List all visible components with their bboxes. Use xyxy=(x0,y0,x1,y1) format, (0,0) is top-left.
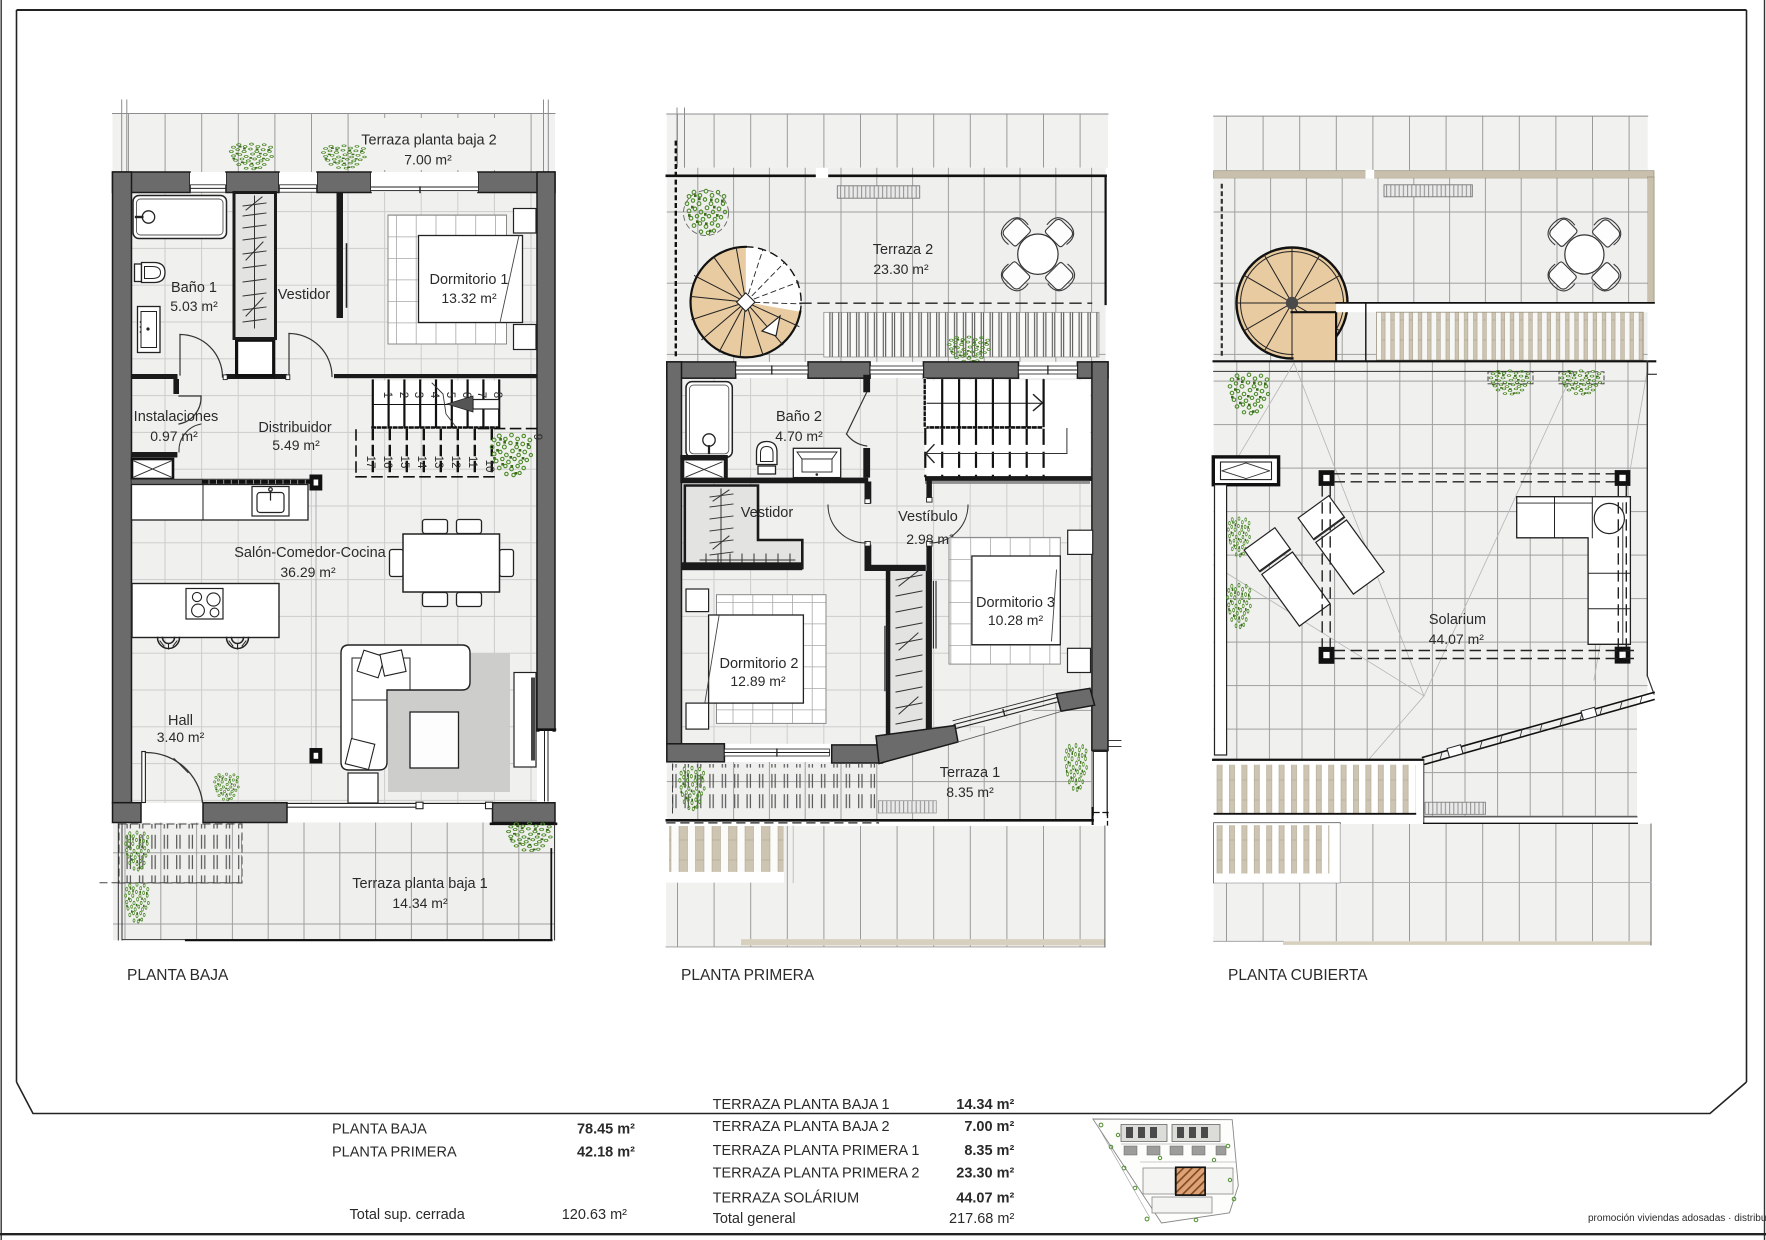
svg-text:1: 1 xyxy=(381,392,393,398)
svg-text:Instalaciones: Instalaciones xyxy=(134,409,219,425)
svg-text:Vestíbulo: Vestíbulo xyxy=(898,509,958,525)
svg-text:120.63 m²: 120.63 m² xyxy=(562,1207,627,1223)
svg-text:Solarium: Solarium xyxy=(1429,612,1486,628)
svg-text:44.07 m²: 44.07 m² xyxy=(956,1191,1014,1207)
svg-text:13.32 m²: 13.32 m² xyxy=(441,290,497,306)
svg-text:TERRAZA PLANTA PRIMERA 1: TERRAZA PLANTA PRIMERA 1 xyxy=(713,1143,920,1159)
svg-text:36.29 m²: 36.29 m² xyxy=(280,564,336,580)
svg-text:16: 16 xyxy=(381,456,393,469)
svg-text:17: 17 xyxy=(364,456,376,469)
svg-text:13: 13 xyxy=(432,456,444,469)
svg-text:PLANTA BAJA: PLANTA BAJA xyxy=(332,1122,427,1138)
svg-text:TERRAZA SOLÁRIUM: TERRAZA SOLÁRIUM xyxy=(713,1190,860,1207)
svg-text:Terraza 1: Terraza 1 xyxy=(940,765,1000,781)
svg-text:0.97 m²: 0.97 m² xyxy=(150,428,198,444)
svg-text:Dormitorio 3: Dormitorio 3 xyxy=(976,595,1055,611)
svg-text:15: 15 xyxy=(398,456,410,469)
svg-text:TERRAZA PLANTA BAJA 2: TERRAZA PLANTA BAJA 2 xyxy=(713,1119,890,1135)
svg-text:8.35 m²: 8.35 m² xyxy=(946,784,994,800)
svg-text:Vestidor: Vestidor xyxy=(278,287,331,303)
svg-text:Total general: Total general xyxy=(713,1211,796,1227)
svg-text:2: 2 xyxy=(397,392,409,398)
svg-text:PLANTA PRIMERA: PLANTA PRIMERA xyxy=(332,1145,457,1161)
svg-text:44.07 m²: 44.07 m² xyxy=(1429,631,1485,647)
svg-text:78.45 m²: 78.45 m² xyxy=(577,1122,635,1138)
svg-text:Vestidor: Vestidor xyxy=(741,505,794,521)
svg-text:7.00 m²: 7.00 m² xyxy=(404,152,452,168)
svg-text:7.00 m²: 7.00 m² xyxy=(964,1119,1014,1135)
svg-text:10: 10 xyxy=(483,460,495,473)
svg-text:PLANTA PRIMERA: PLANTA PRIMERA xyxy=(681,967,815,984)
svg-text:217.68 m²: 217.68 m² xyxy=(949,1211,1014,1227)
svg-text:23.30 m²: 23.30 m² xyxy=(873,261,929,277)
svg-text:8.35 m²: 8.35 m² xyxy=(964,1143,1014,1159)
svg-text:Baño 2: Baño 2 xyxy=(776,409,822,425)
svg-text:14: 14 xyxy=(415,456,427,469)
svg-text:Terraza planta baja 2: Terraza planta baja 2 xyxy=(361,133,496,149)
svg-text:8: 8 xyxy=(491,392,503,398)
svg-text:Terraza 2: Terraza 2 xyxy=(873,242,933,258)
svg-text:Dormitorio 2: Dormitorio 2 xyxy=(720,656,799,672)
svg-text:7: 7 xyxy=(475,392,487,398)
svg-text:Hall: Hall xyxy=(168,713,193,729)
svg-text:PLANTA CUBIERTA: PLANTA CUBIERTA xyxy=(1228,967,1368,984)
svg-text:14.34 m²: 14.34 m² xyxy=(392,895,448,911)
svg-text:Terraza planta baja 1: Terraza planta baja 1 xyxy=(352,876,487,892)
svg-text:14.34 m²: 14.34 m² xyxy=(956,1097,1014,1113)
svg-text:23.30 m²: 23.30 m² xyxy=(956,1166,1014,1182)
svg-text:42.18 m²: 42.18 m² xyxy=(577,1145,635,1161)
svg-text:TERRAZA PLANTA PRIMERA 2: TERRAZA PLANTA PRIMERA 2 xyxy=(713,1166,920,1182)
svg-text:5.49 m²: 5.49 m² xyxy=(272,437,320,453)
svg-text:5: 5 xyxy=(444,392,456,398)
svg-text:5.03 m²: 5.03 m² xyxy=(170,298,218,314)
svg-text:Salón-Comedor-Cocina: Salón-Comedor-Cocina xyxy=(234,545,386,561)
svg-text:TERRAZA PLANTA BAJA 1: TERRAZA PLANTA BAJA 1 xyxy=(713,1097,890,1113)
svg-text:12: 12 xyxy=(449,456,461,469)
svg-text:3: 3 xyxy=(412,392,424,398)
svg-text:12.89 m²: 12.89 m² xyxy=(730,673,786,689)
svg-text:11: 11 xyxy=(466,456,478,468)
svg-text:10.28 m²: 10.28 m² xyxy=(988,612,1044,628)
svg-text:3.40 m²: 3.40 m² xyxy=(157,729,205,745)
svg-text:PLANTA BAJA: PLANTA BAJA xyxy=(127,967,229,984)
svg-text:4.70 m²: 4.70 m² xyxy=(775,428,823,444)
svg-text:promoción viviendas adosadas ·: promoción viviendas adosadas · distribuc… xyxy=(1588,1213,1766,1224)
svg-text:Total sup. cerrada: Total sup. cerrada xyxy=(350,1207,466,1223)
svg-text:4: 4 xyxy=(428,392,440,399)
svg-text:Dormitorio 1: Dormitorio 1 xyxy=(430,272,509,288)
svg-text:9: 9 xyxy=(531,434,543,440)
svg-text:Distribuidor: Distribuidor xyxy=(258,420,331,436)
svg-text:Baño 1: Baño 1 xyxy=(171,280,217,296)
